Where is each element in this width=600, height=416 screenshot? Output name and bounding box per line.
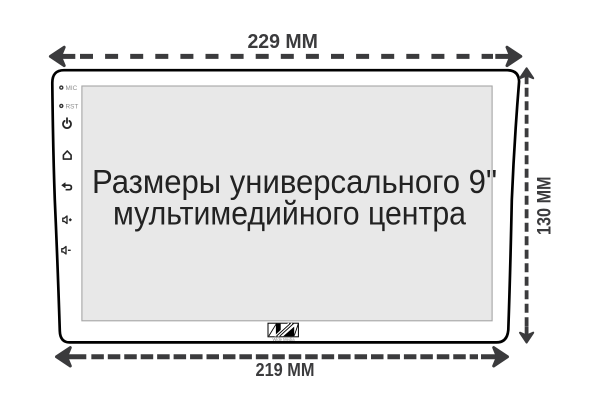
svg-text:130 ММ: 130 ММ bbox=[535, 176, 556, 235]
svg-text:мультимедийного центра: мультимедийного центра bbox=[113, 195, 466, 232]
svg-text:Wide Media: Wide Media bbox=[272, 337, 295, 342]
svg-text:MIC: MIC bbox=[66, 85, 78, 92]
svg-text:219 ММ: 219 ММ bbox=[256, 359, 315, 380]
svg-text:229 ММ: 229 ММ bbox=[247, 31, 318, 53]
svg-text:RST: RST bbox=[66, 103, 79, 110]
